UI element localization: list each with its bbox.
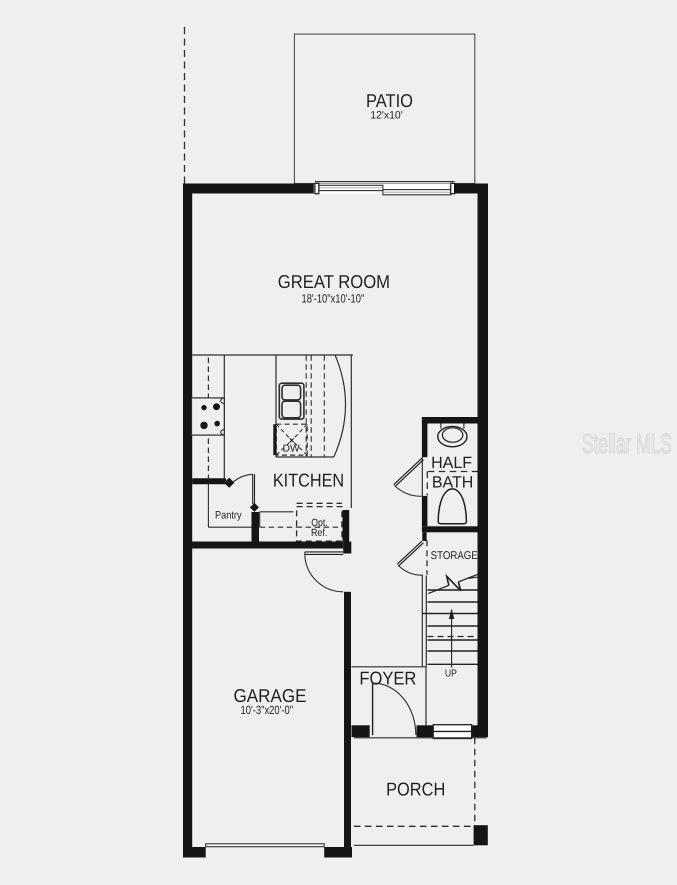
svg-text:18'-10"x10'-10": 18'-10"x10'-10": [302, 292, 365, 306]
svg-text:PATIO: PATIO: [366, 90, 413, 111]
svg-text:GREAT ROOM: GREAT ROOM: [278, 271, 390, 292]
svg-text:KITCHEN: KITCHEN: [273, 470, 344, 491]
svg-text:10'-3"x20'-0": 10'-3"x20'-0": [241, 703, 294, 717]
svg-text:UP: UP: [445, 669, 457, 680]
svg-text:Pantry: Pantry: [215, 509, 242, 521]
svg-text:PORCH: PORCH: [386, 779, 445, 800]
svg-text:Ref.: Ref.: [311, 527, 328, 539]
svg-text:Stellar MLS: Stellar MLS: [582, 428, 672, 459]
svg-text:HALF: HALF: [431, 454, 472, 472]
svg-text:12'x10': 12'x10': [370, 110, 403, 122]
svg-text:STORAGE: STORAGE: [431, 550, 478, 562]
svg-text:DW: DW: [283, 444, 301, 455]
svg-text:FOYER: FOYER: [359, 667, 416, 688]
